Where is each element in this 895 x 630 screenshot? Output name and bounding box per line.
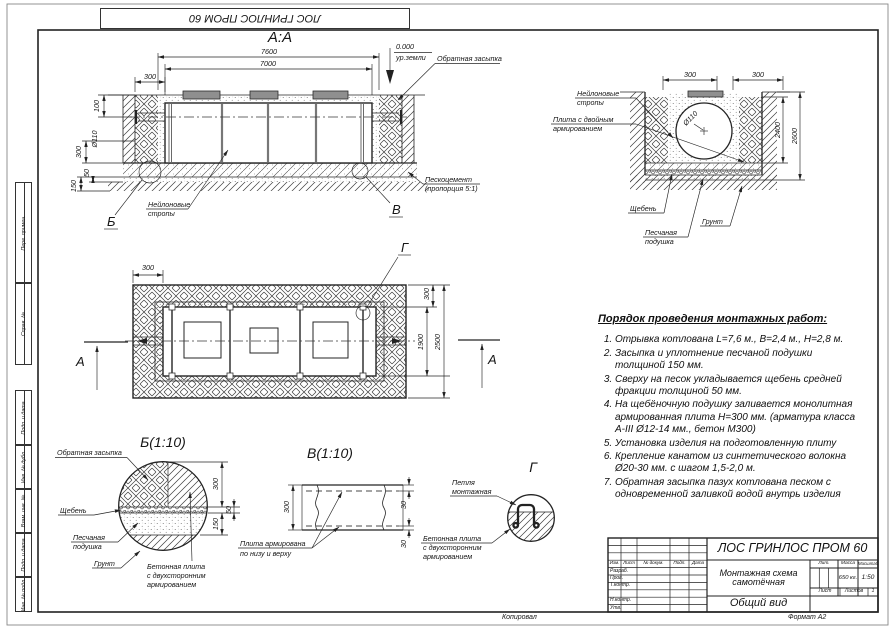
tb-sheet-label: Лист — [810, 588, 840, 596]
instruction-item: На щебёночную подушку заливается монолит… — [615, 399, 856, 436]
side-field-label: Взам. инв. № — [21, 495, 27, 528]
tb-col-izm: Изм. — [608, 560, 621, 567]
instruction-item: Установка изделия на подготовленную плит… — [615, 438, 856, 450]
tb-row-razrab: Разраб. — [610, 568, 637, 575]
side-field-inv-dubl: Инв. № дубл. — [15, 445, 32, 489]
tb-product-name: ЛОС ГРИНЛОС ПРОМ 60 — [707, 538, 878, 560]
tb-row-tkontr: Т.контр. — [610, 582, 637, 589]
side-field-vzam-inv: Взам. инв. № — [15, 489, 32, 533]
tb-sheets-value: 1 — [868, 588, 878, 596]
tb-scale-value: 1:50 — [858, 568, 878, 588]
overlay-layer: ЛОС ГРИНЛОС ПРОМ 60 Перв. примен. Справ.… — [0, 0, 895, 630]
tb-view-name: Общий вид — [707, 596, 810, 612]
instruction-item: Крепление канатом из синтетического воло… — [615, 451, 856, 475]
instructions-list: Отрывка котлована L=7,6 м., В=2,4 м., Н=… — [598, 334, 856, 501]
side-field-label: Подп. и дата — [21, 538, 27, 571]
tb-row-utv: Утв. — [610, 605, 637, 612]
side-field-label: Справ. № — [21, 312, 27, 336]
instruction-item: Сверху на песок укладывается щебень сред… — [615, 374, 856, 398]
instruction-item: Засыпка и уплотнение песчаной подушки то… — [615, 348, 856, 372]
tb-col-doc: № докум. — [637, 560, 670, 567]
top-stamp-text: ЛОС ГРИНЛОС ПРОМ 60 — [189, 13, 321, 25]
side-field-podp-data-2: Подп. и дата — [15, 533, 32, 577]
tb-col-podp: Подп. — [670, 560, 689, 567]
side-field-podp-data-1: Подп. и дата — [15, 390, 32, 445]
tb-mass-label: Масса — [838, 560, 858, 568]
instruction-item: Отрывка котлована L=7,6 м., В=2,4 м., Н=… — [615, 334, 856, 346]
tb-scale-label: Масштаб — [858, 560, 878, 568]
top-edge-stamp: ЛОС ГРИНЛОС ПРОМ 60 — [100, 8, 410, 29]
instructions-title: Порядок проведения монтажных работ: — [598, 313, 856, 325]
tb-row-prov: Пров. — [610, 575, 637, 582]
side-field-inv-podl: Инв. № подл. — [15, 577, 32, 612]
tb-doc-name: Монтажная схема самотёчная — [710, 560, 807, 596]
tb-mass-value: 650 кг. — [838, 568, 858, 588]
instruction-item: Обратная засыпка пазух котлована песком … — [615, 477, 856, 501]
footer-format: Формат А2 — [788, 614, 826, 621]
tb-col-data: Дата — [689, 560, 707, 567]
side-field-label: Подп. и дата — [21, 401, 27, 434]
side-field-label: Инв. № дубл. — [21, 451, 27, 484]
instructions-block: Порядок проведения монтажных работ: Отры… — [598, 313, 856, 503]
tb-lit-label: Лит. — [810, 560, 838, 568]
side-field-sprav: Справ. № — [15, 283, 32, 365]
footer-copied: Копировал — [502, 614, 537, 621]
tb-sheets-label: Листов — [840, 588, 868, 596]
side-field-perv-primen: Перв. примен. — [15, 182, 32, 283]
drawing-sheet: А:А 7600 7000 300 — [0, 0, 895, 630]
tb-row-nkontr: Н.контр. — [610, 597, 637, 604]
tb-col-list: Лист — [621, 560, 637, 567]
side-field-label: Перв. примен. — [21, 215, 27, 250]
side-field-label: Инв. № подл. — [21, 578, 27, 611]
